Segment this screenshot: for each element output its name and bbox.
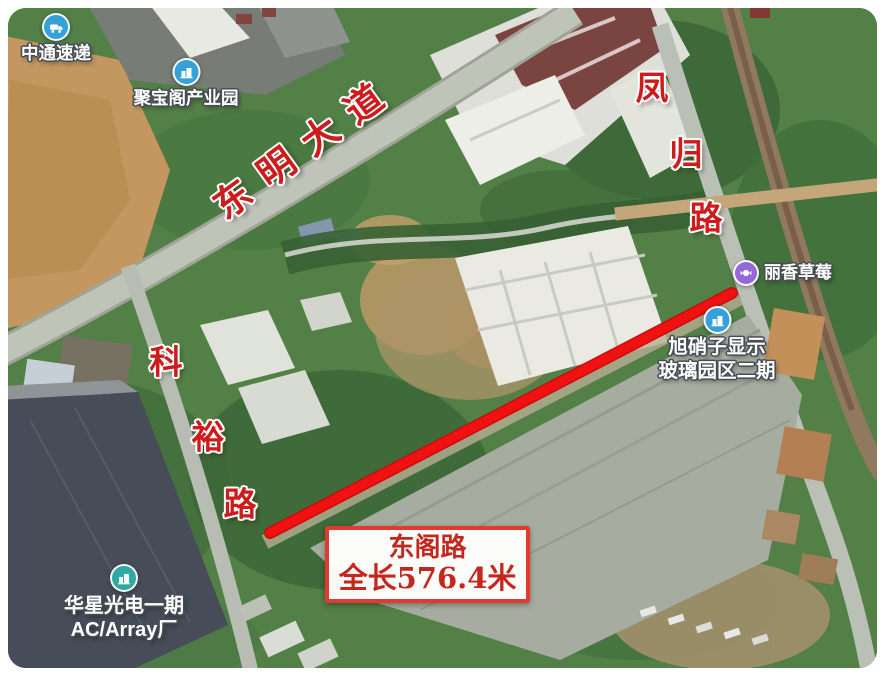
poi-jubaoge-industrial-park[interactable]: 聚宝阁产业园 <box>134 58 239 109</box>
building-icon <box>110 564 138 592</box>
building-icon <box>703 306 731 334</box>
poi-label-line2: 玻璃园区二期 <box>658 360 775 384</box>
road-label-fenggui-char: 路 <box>690 202 723 235</box>
road-label-fenggui-char: 凤 <box>636 72 669 105</box>
satellite-map[interactable]: 东明大道 凤 归 路 科 裕 路 中通速递 <box>8 8 877 668</box>
road-length-annotation-box: 东阁路 全长576.4米 <box>325 526 530 603</box>
annotation-road-length: 全长576.4米 <box>339 562 517 595</box>
poi-label: 丽香草莓 <box>764 263 832 284</box>
poi-label-line2: AC/Array厂 <box>71 618 178 642</box>
poi-label: 中通速递 <box>21 43 91 64</box>
truck-icon <box>42 13 70 41</box>
road-label-keyu-char: 路 <box>224 488 257 521</box>
poi-label-line1: 旭硝子显示 <box>668 336 766 360</box>
poi-label: 聚宝阁产业园 <box>134 88 239 109</box>
poi-zto-express[interactable]: 中通速递 <box>21 13 91 64</box>
road-label-keyu-char: 科 <box>150 346 183 379</box>
candy-icon <box>733 260 759 286</box>
road-label-fenggui-char: 归 <box>670 138 703 171</box>
poi-lixiang-strawberry[interactable]: 丽香草莓 <box>733 260 832 286</box>
poi-csot-phase1[interactable]: 华星光电一期 AC/Array厂 <box>64 564 184 643</box>
road-label-keyu-char: 裕 <box>192 421 225 454</box>
building-icon <box>172 58 200 86</box>
poi-label-line1: 华星光电一期 <box>64 594 184 618</box>
annotation-road-name: 东阁路 <box>388 534 466 563</box>
poi-asahi-glass-park[interactable]: 旭硝子显示 玻璃园区二期 <box>658 306 775 384</box>
map-canvas: 东明大道 凤 归 路 科 裕 路 中通速递 <box>8 8 877 668</box>
